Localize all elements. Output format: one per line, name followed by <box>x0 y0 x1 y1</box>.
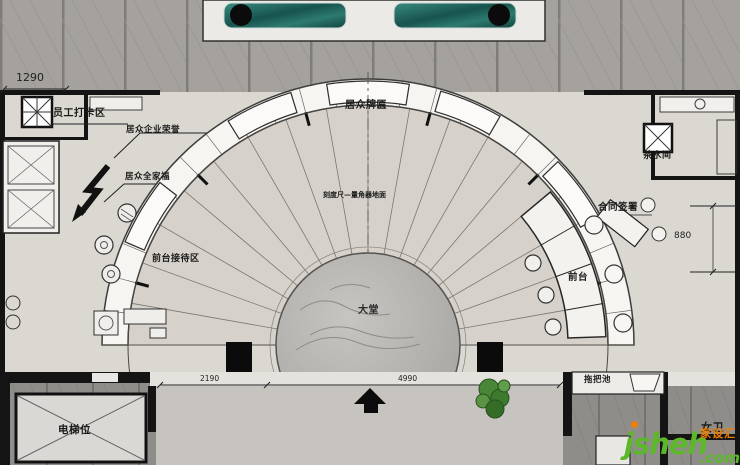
side-table <box>150 328 166 338</box>
stool-left-2 <box>95 236 113 254</box>
label-punch-area: 员工打卡区 <box>53 109 106 119</box>
column-black-right <box>477 342 503 372</box>
wall-seg-1 <box>148 386 156 432</box>
label-mop-sink: 拖把池 <box>584 376 611 385</box>
guest-stool-2 <box>538 287 554 303</box>
left-cabinet <box>3 141 59 233</box>
wall-top-left <box>0 90 160 95</box>
counter-basin-left <box>230 4 252 26</box>
label-protractor-floor: 刻度尺—量角器地面 <box>323 192 386 199</box>
floor-plan: 1290 员工打卡区 居众企业荣誉 居众全家福 前台接待区 居众牌匾 刻度尺—量… <box>0 0 740 465</box>
label-lobby: 大堂 <box>358 306 379 316</box>
label-honors: 居众企业荣誉 <box>126 126 180 135</box>
guest-stool-1 <box>525 255 541 271</box>
wall-seg-4 <box>0 383 10 465</box>
label-front-desk: 前台 <box>568 273 588 283</box>
column-hatch-lines <box>22 97 52 127</box>
punch-room-wall2 <box>0 137 88 140</box>
guest-stool-3 <box>545 319 561 335</box>
watermark-cn: 家设汇 <box>700 425 736 441</box>
floor-plan-drawing <box>0 0 740 465</box>
label-family-photo: 居众全家福 <box>125 173 170 182</box>
wall-top-right <box>584 90 740 95</box>
sofa <box>124 309 166 324</box>
door-gap-left <box>92 373 118 382</box>
label-contract-sign: 合同签署 <box>598 203 638 213</box>
tea-counter <box>660 97 734 112</box>
wall-seg-2 <box>563 372 572 436</box>
coffee-table <box>94 311 118 335</box>
dim-2190: 2190 <box>200 375 219 383</box>
desk-chair-3 <box>614 314 632 332</box>
watermark-tld: .com <box>699 449 740 465</box>
watermark-site: jsheh <box>624 427 707 461</box>
desk-chair-1 <box>585 216 603 234</box>
stool-left-3 <box>102 265 120 283</box>
label-plaque: 居众牌匾 <box>345 101 387 111</box>
dim-880: 880 <box>674 232 691 241</box>
label-tea-room: 茶水间 <box>643 152 672 161</box>
tea-room-wall2 <box>651 176 740 180</box>
label-reception-area: 前台接待区 <box>152 255 200 264</box>
counter-basin-right <box>488 4 510 26</box>
dim-1290: 1290 <box>16 72 44 83</box>
contract-chair-2 <box>652 227 666 241</box>
watermark: jsheh 家设汇 .com <box>622 419 740 465</box>
contract-chair-1 <box>641 198 655 212</box>
desk-chair-2 <box>605 265 623 283</box>
dim-4990: 4990 <box>398 375 417 383</box>
column-black-left <box>226 342 252 372</box>
label-elevator: 电梯位 <box>58 425 91 436</box>
wall-elevator-top <box>0 372 150 383</box>
